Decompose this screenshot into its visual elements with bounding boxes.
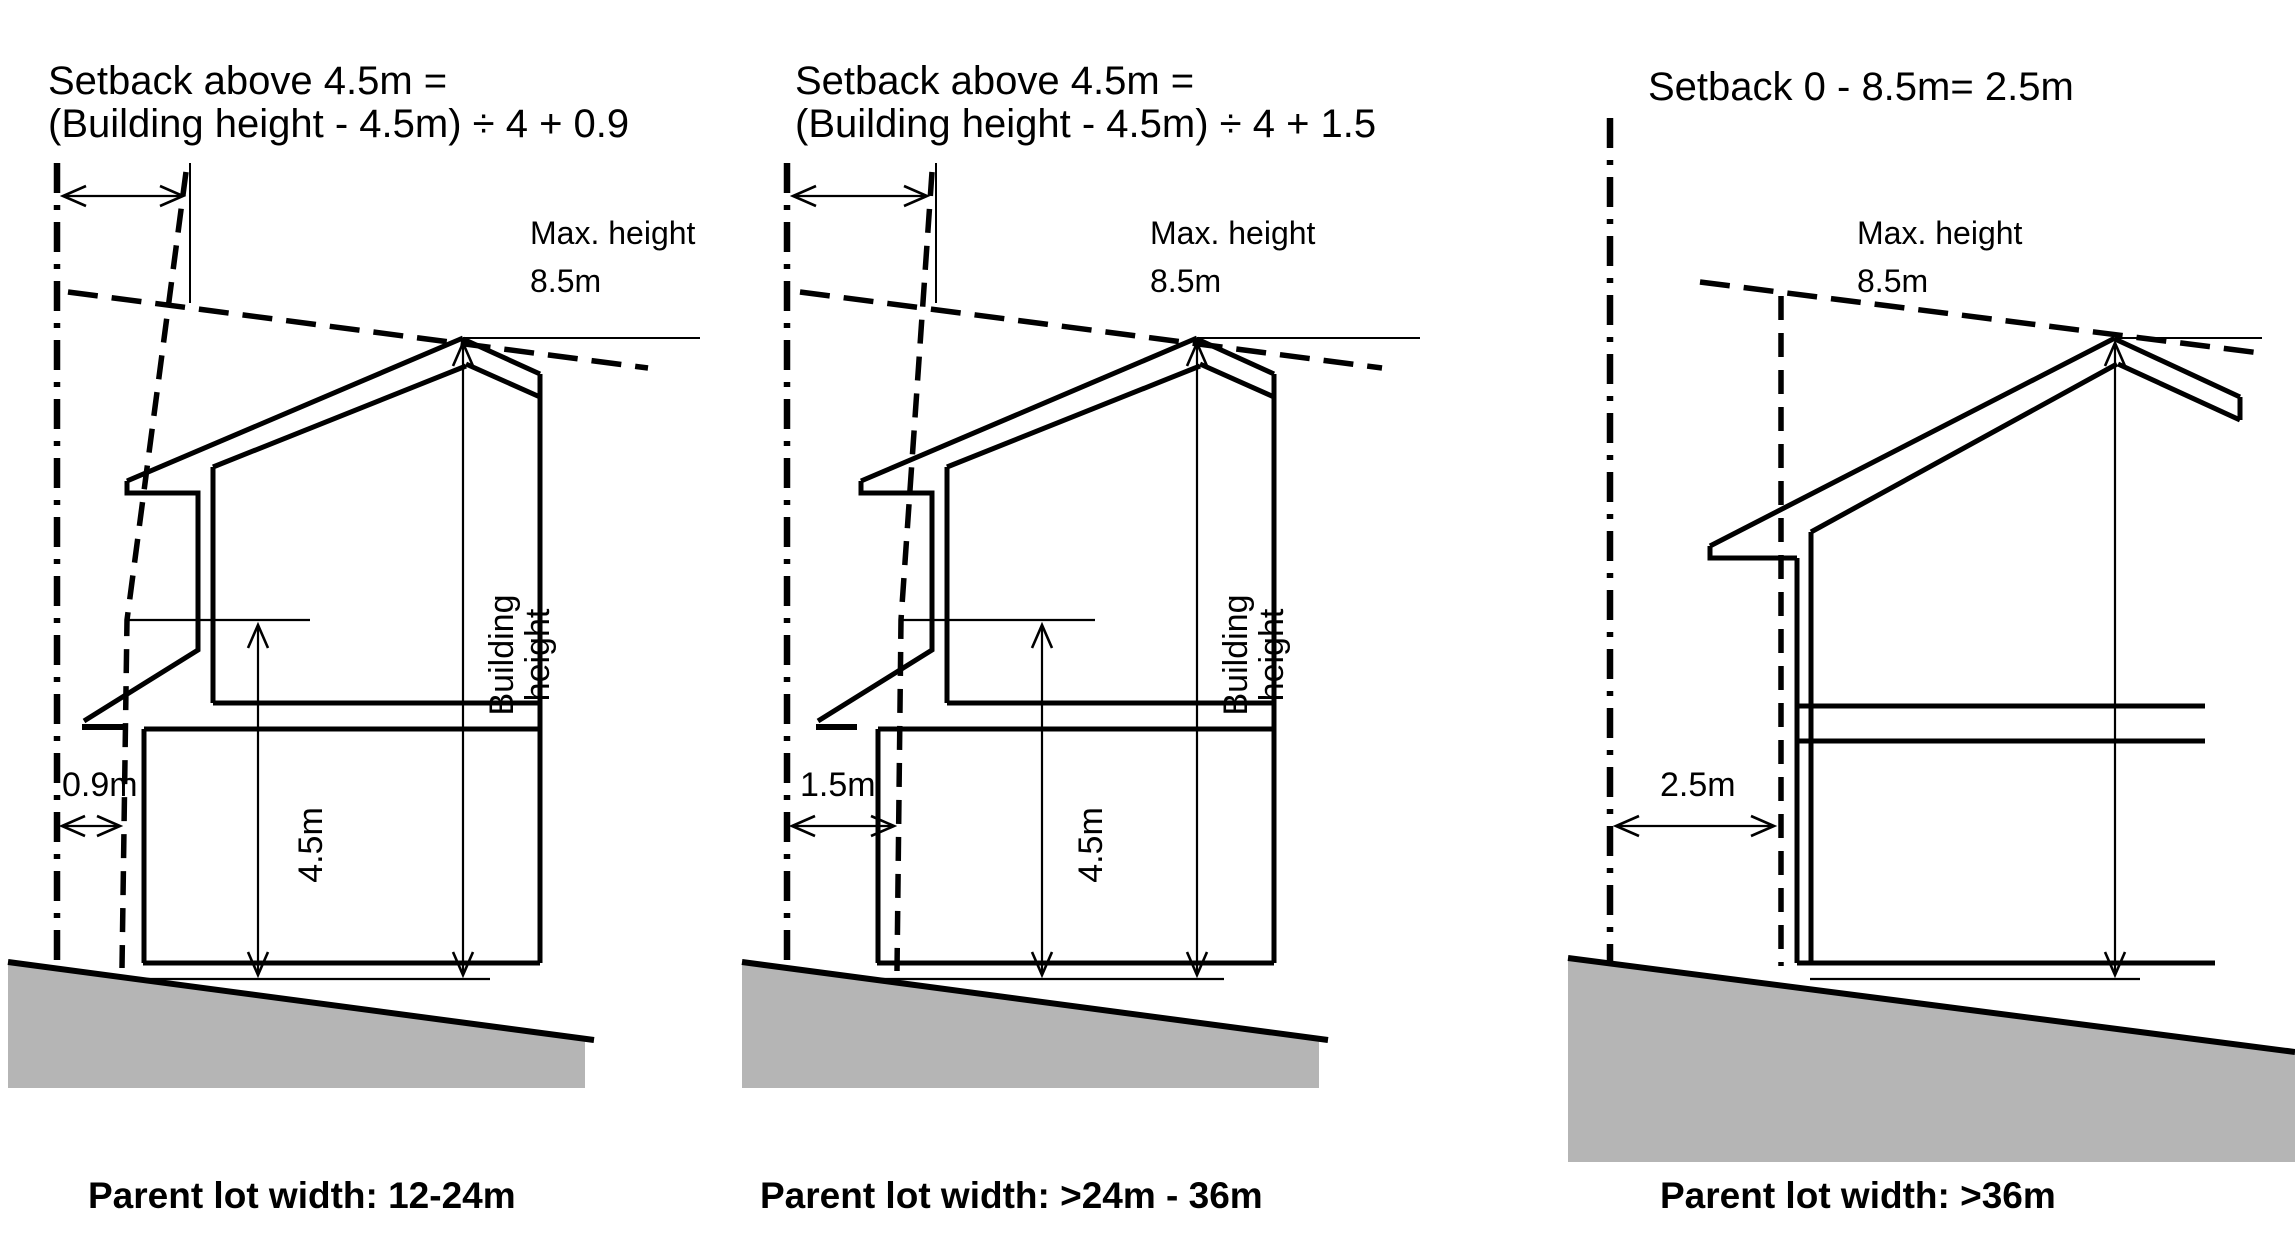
- panel2-building-outline: [816, 338, 1274, 963]
- panel3-max-height-label: Max. height: [1857, 215, 2023, 251]
- panel3-parent-lot-label: Parent lot width: >36m: [1660, 1175, 2056, 1216]
- panel3-ground-setback-label: 2.5m: [1660, 766, 1736, 804]
- setback-diagram: Setback above 4.5m = (Building height - …: [0, 0, 2295, 1239]
- panel-lot-over-36m: Setback 0 - 8.5m= 2.5m Max. height 8.5m …: [1568, 65, 2295, 1216]
- panel1-formula-line1: Setback above 4.5m =: [48, 59, 447, 103]
- panel2-ground-setback-label: 1.5m: [800, 766, 876, 804]
- panel1-max-height-value: 8.5m: [530, 263, 601, 299]
- panel3-building-outline: [1710, 338, 2240, 963]
- svg-text:4.5m: 4.5m: [292, 807, 330, 883]
- svg-text:Building: Building: [1217, 595, 1255, 716]
- panel1-max-height-plane: [68, 292, 648, 368]
- panel-lot-24-36m: Setback above 4.5m = (Building height - …: [742, 59, 1420, 1216]
- svg-text:height: height: [519, 608, 557, 701]
- panel3-ground: [1568, 958, 2295, 1162]
- panel2-formula-line1: Setback above 4.5m =: [795, 59, 1194, 103]
- svg-text:Building: Building: [483, 595, 521, 716]
- panel2-setback-envelope: [897, 172, 932, 971]
- panel-lot-12-24m: Setback above 4.5m = (Building height - …: [8, 59, 700, 1216]
- panel3-max-height-value: 8.5m: [1857, 263, 1928, 299]
- panel2-max-height-label: Max. height: [1150, 215, 1316, 251]
- panel1-parent-lot-label: Parent lot width: 12-24m: [88, 1175, 516, 1216]
- svg-text:height: height: [1253, 608, 1291, 701]
- panel3-max-height-plane: [1700, 282, 2260, 353]
- panel2-formula-line2: (Building height - 4.5m) ÷ 4 + 1.5: [795, 102, 1376, 146]
- panel1-ground-setback-label: 0.9m: [62, 766, 138, 804]
- panel1-setback-envelope: [122, 172, 186, 968]
- panel1-building-height-label: Building height: [483, 595, 557, 716]
- panel1-max-height-label: Max. height: [530, 215, 696, 251]
- panel2-parent-lot-label: Parent lot width: >24m - 36m: [760, 1175, 1263, 1216]
- panel1-45-label: 4.5m: [292, 807, 330, 883]
- panel2-max-height-plane: [800, 292, 1382, 368]
- diagram-canvas: Setback above 4.5m = (Building height - …: [0, 0, 2295, 1239]
- panel2-building-height-label: Building height: [1217, 595, 1291, 716]
- panel2-45-label: 4.5m: [1072, 807, 1110, 883]
- svg-text:4.5m: 4.5m: [1072, 807, 1110, 883]
- panel2-max-height-value: 8.5m: [1150, 263, 1221, 299]
- panel3-formula: Setback 0 - 8.5m= 2.5m: [1648, 65, 2074, 109]
- panel1-formula-line2: (Building height - 4.5m) ÷ 4 + 0.9: [48, 102, 629, 146]
